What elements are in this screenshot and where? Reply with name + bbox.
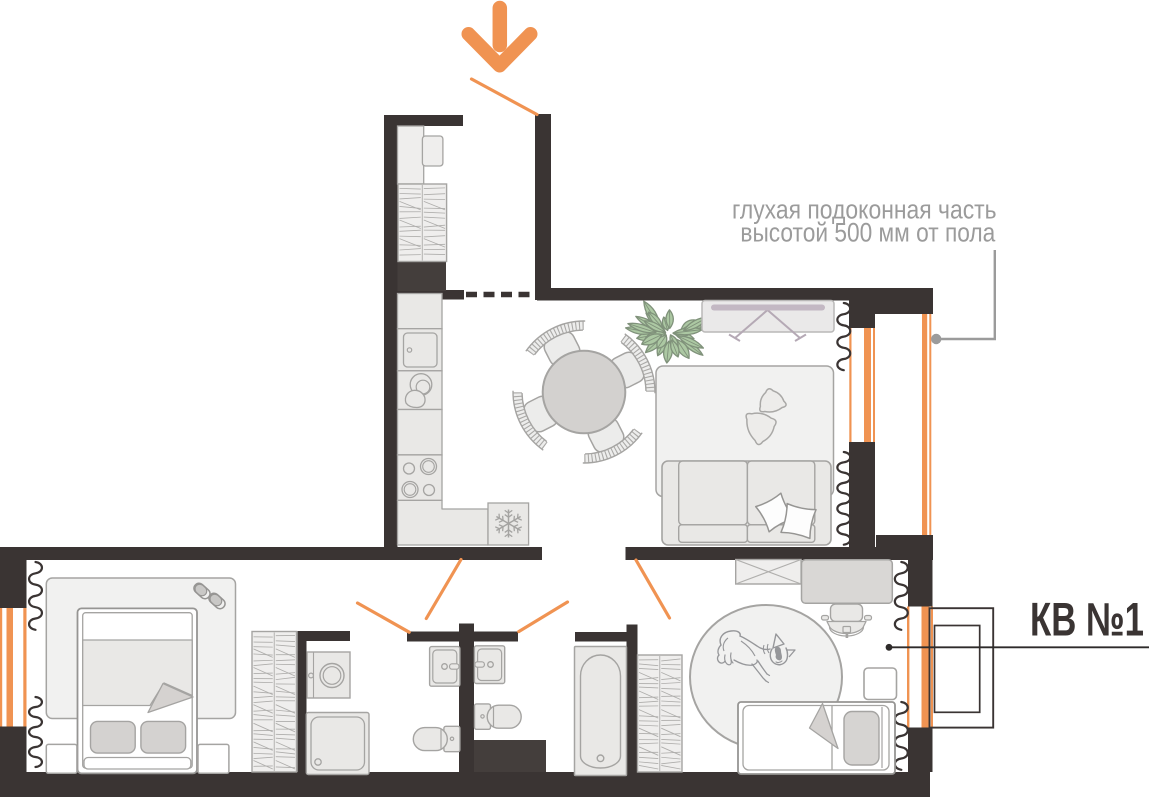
svg-text:высотой 500 мм от пола: высотой 500 мм от пола <box>740 218 996 248</box>
svg-text:КВ №1: КВ №1 <box>1030 593 1144 646</box>
